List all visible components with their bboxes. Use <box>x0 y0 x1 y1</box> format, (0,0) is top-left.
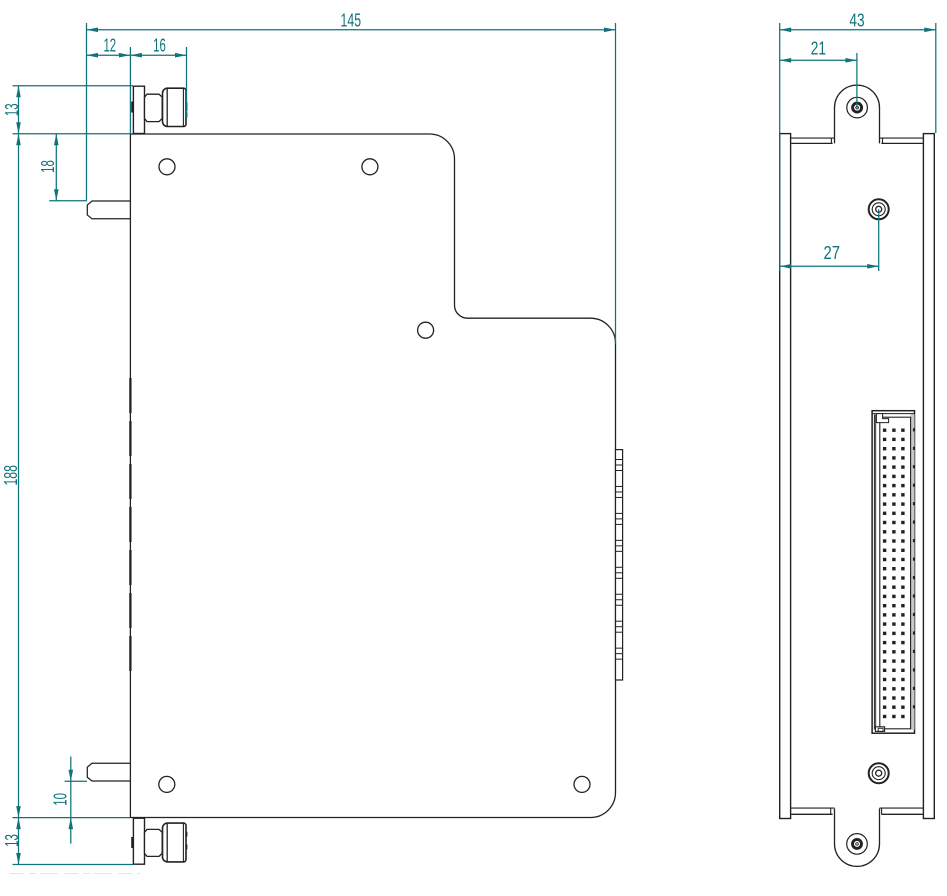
svg-text:13: 13 <box>1 834 22 847</box>
svg-text:145: 145 <box>341 9 362 30</box>
svg-text:16: 16 <box>153 35 166 56</box>
svg-text:18: 18 <box>37 160 58 173</box>
svg-text:27: 27 <box>823 242 840 263</box>
svg-text:10: 10 <box>50 793 71 806</box>
svg-text:12: 12 <box>103 35 116 56</box>
svg-text:21: 21 <box>811 38 826 59</box>
svg-text:13: 13 <box>1 103 22 116</box>
svg-text:188: 188 <box>0 465 21 486</box>
svg-text:43: 43 <box>849 10 864 31</box>
